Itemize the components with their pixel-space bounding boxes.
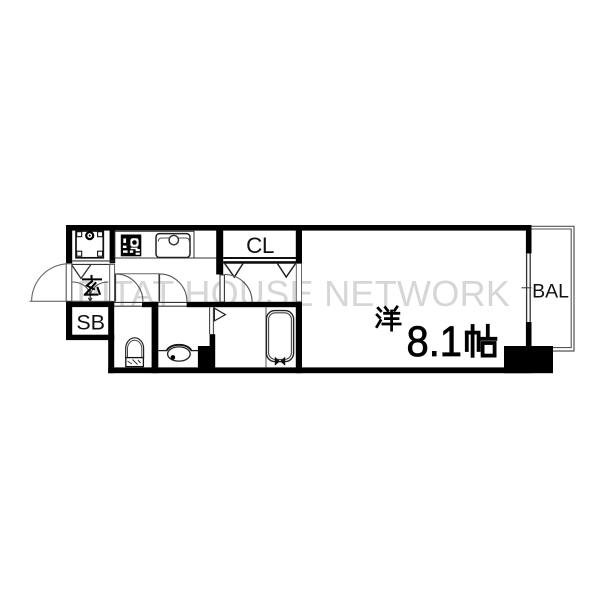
svg-text:BAL: BAL bbox=[532, 280, 569, 302]
svg-text:SB: SB bbox=[76, 311, 105, 335]
svg-text:8.1: 8.1 bbox=[407, 319, 463, 366]
svg-text:CL: CL bbox=[246, 233, 274, 258]
